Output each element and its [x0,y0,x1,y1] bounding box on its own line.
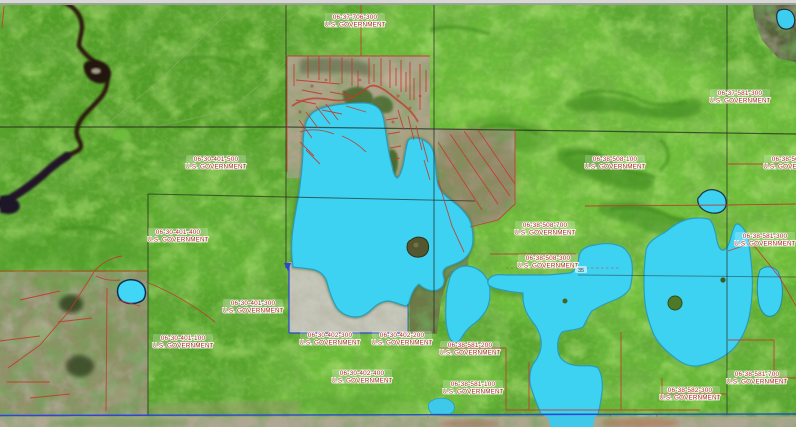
svg-text:06-30-402-200: 06-30-402-200 [380,332,425,339]
svg-text:U.S. GOVERNMENT: U.S. GOVERNMENT [331,378,392,385]
svg-text:06-38-581-100: 06-38-581-100 [451,381,496,388]
svg-text:U.S. GOVERNMENT: U.S. GOVERNMENT [659,395,720,402]
svg-text:06-38-581-700: 06-38-581-700 [735,371,780,378]
svg-text:06-38-508-200: 06-38-508-200 [772,156,796,163]
svg-text:U.S. GOVERNMENT: U.S. GOVERNMENT [299,340,360,347]
svg-text:U.S. GOVERNMENT: U.S. GOVERNMENT [185,164,246,171]
svg-text:U.S. GOVERNMENT: U.S. GOVERNMENT [709,98,770,105]
svg-text:U.S. GOVERNMENT: U.S. GOVERNMENT [763,164,796,171]
svg-text:06-37-581-300: 06-37-581-300 [718,90,763,97]
svg-text:U.S. GOVERNMENT: U.S. GOVERNMENT [734,241,795,248]
svg-text:06-38-581-300: 06-38-581-300 [743,233,788,240]
svg-text:U.S. GOVERNMENT: U.S. GOVERNMENT [439,350,500,357]
svg-text:U.S. GOVERNMENT: U.S. GOVERNMENT [371,340,432,347]
svg-text:06-30-402-300: 06-30-402-300 [308,332,353,339]
svg-text:U.S. GOVERNMENT: U.S. GOVERNMENT [584,164,645,171]
svg-text:06-30-401-400: 06-30-401-400 [156,229,201,236]
svg-text:U.S. GOVERNMENT: U.S. GOVERNMENT [147,237,208,244]
svg-text:U.S. GOVERNMENT: U.S. GOVERNMENT [517,263,578,270]
svg-text:06-30-401-500: 06-30-401-500 [194,156,239,163]
svg-text:06-30-401-300: 06-30-401-300 [231,300,276,307]
svg-text:06-38-508-300: 06-38-508-300 [526,255,571,262]
svg-text:06-38-508-100: 06-38-508-100 [593,156,638,163]
svg-text:06-30-401-100: 06-30-401-100 [161,335,206,342]
svg-text:U.S. GOVERNMENT: U.S. GOVERNMENT [726,379,787,386]
svg-text:U.S. GOVERNMENT: U.S. GOVERNMENT [222,308,283,315]
svg-text:U.S. GOVERNMENT: U.S. GOVERNMENT [324,22,385,29]
svg-text:35: 35 [578,268,584,274]
svg-text:U.S. GOVERNMENT: U.S. GOVERNMENT [152,343,213,350]
svg-text:06-38-581-200: 06-38-581-200 [448,342,493,349]
svg-text:U.S. GOVERNMENT: U.S. GOVERNMENT [442,389,503,396]
svg-text:06-37-706-300: 06-37-706-300 [333,14,378,21]
svg-text:06-38-508-700: 06-38-508-700 [523,222,568,229]
svg-text:U.S. GOVERNMENT: U.S. GOVERNMENT [514,230,575,237]
svg-text:06-30-402-400: 06-30-402-400 [340,370,385,377]
svg-text:06-38-582-300: 06-38-582-300 [668,387,713,394]
